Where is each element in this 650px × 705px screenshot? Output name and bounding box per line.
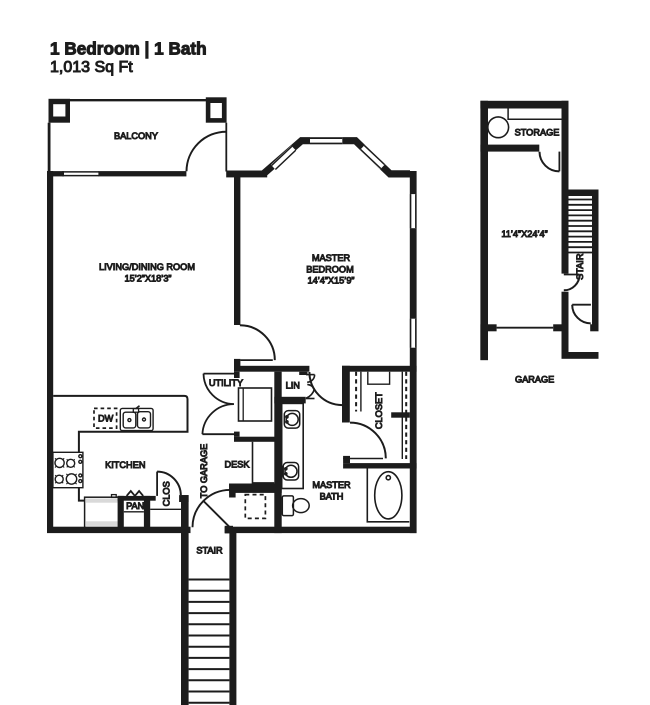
svg-text:TO GARAGE: TO GARAGE	[199, 444, 209, 498]
svg-text:11’4”X24’4”: 11’4”X24’4”	[501, 229, 547, 239]
svg-text:KITCHEN: KITCHEN	[105, 460, 145, 470]
svg-text:14’4”X15’9”: 14’4”X15’9”	[308, 276, 355, 286]
svg-text:GARAGE: GARAGE	[515, 374, 554, 384]
svg-text:STORAGE: STORAGE	[515, 128, 560, 138]
svg-text:LIVING/DINING ROOM: LIVING/DINING ROOM	[99, 262, 195, 272]
svg-text:LIN: LIN	[286, 381, 300, 391]
svg-text:PAN: PAN	[126, 501, 144, 511]
svg-text:15’2”X18’3”: 15’2”X18’3”	[125, 274, 172, 284]
svg-text:MASTER: MASTER	[312, 253, 351, 263]
svg-text:UTILITY: UTILITY	[209, 378, 243, 388]
svg-text:1 Bedroom | 1 Bath: 1 Bedroom | 1 Bath	[50, 39, 207, 59]
svg-text:BALCONY: BALCONY	[114, 131, 158, 141]
svg-text:BEDROOM: BEDROOM	[306, 264, 353, 274]
svg-text:DESK: DESK	[224, 459, 250, 469]
svg-text:MASTER: MASTER	[312, 480, 351, 490]
svg-text:CLOSET: CLOSET	[374, 392, 384, 429]
svg-text:BATH: BATH	[320, 492, 344, 502]
svg-text:DW: DW	[98, 414, 114, 424]
svg-text:STAIR: STAIR	[196, 546, 223, 556]
svg-text:CLOS: CLOS	[162, 481, 172, 506]
svg-text:1,013 Sq Ft: 1,013 Sq Ft	[50, 59, 133, 76]
